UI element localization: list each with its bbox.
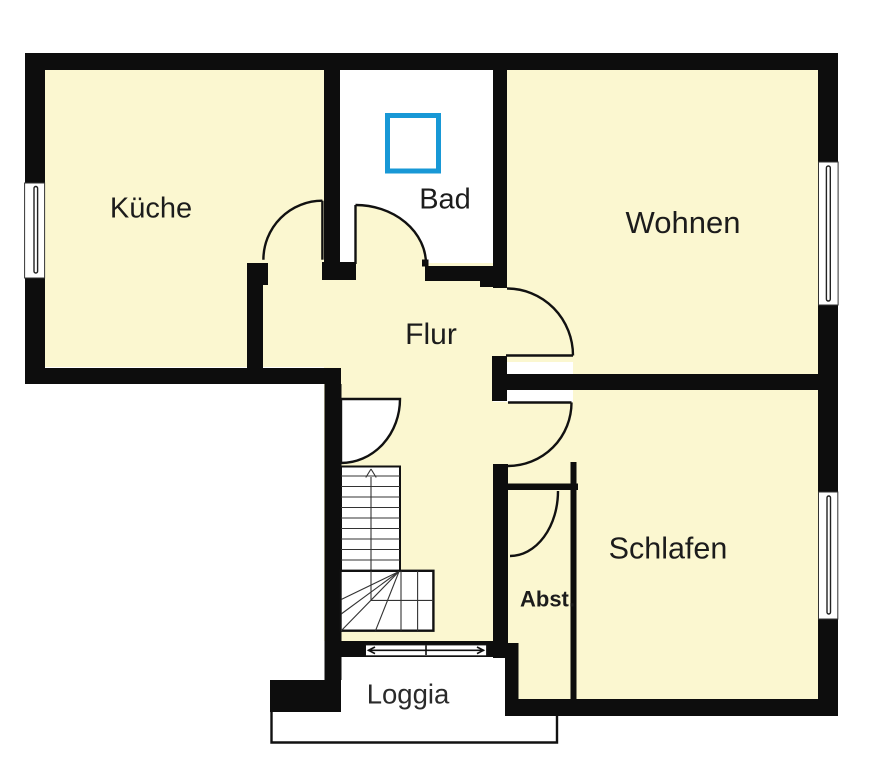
svg-text:Abst.: Abst. — [520, 587, 575, 612]
svg-text:Wohnen: Wohnen — [626, 205, 741, 240]
svg-text:Loggia: Loggia — [367, 679, 450, 710]
svg-text:Flur: Flur — [405, 318, 457, 351]
svg-text:Küche: Küche — [110, 193, 192, 225]
svg-text:Schlafen: Schlafen — [609, 532, 728, 566]
svg-text:Bad: Bad — [419, 184, 471, 216]
